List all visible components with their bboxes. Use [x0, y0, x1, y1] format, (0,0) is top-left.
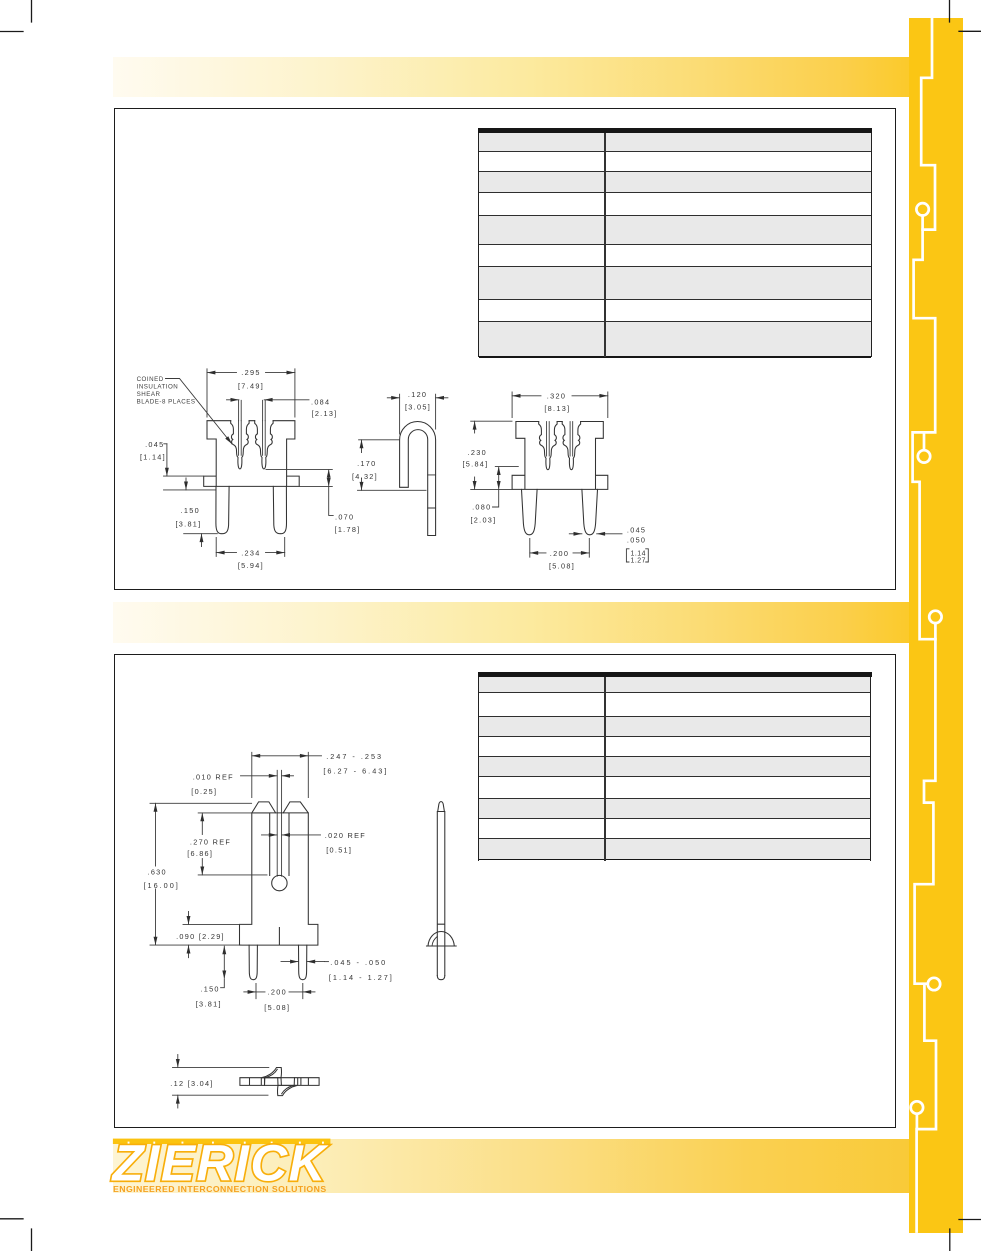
svg-text:.270 REF: .270 REF: [190, 837, 231, 846]
svg-text:.020 REF: .020 REF: [325, 831, 366, 840]
svg-text:[0.51]: [0.51]: [326, 846, 352, 855]
svg-text:COINED: COINED: [137, 376, 164, 383]
svg-text:.045: .045: [145, 440, 164, 449]
svg-text:ENGINEERED INTERCONNECTION SOL: ENGINEERED INTERCONNECTION SOLUTIONS: [113, 1184, 327, 1194]
svg-text:.234: .234: [241, 548, 260, 557]
svg-text:[4.32]: [4.32]: [352, 472, 378, 481]
svg-text:[1.78]: [1.78]: [335, 525, 361, 534]
svg-text:.120: .120: [408, 390, 427, 399]
svg-text:.045: .045: [627, 526, 646, 535]
svg-text:.295: .295: [241, 368, 260, 377]
svg-text:.010 REF: .010 REF: [193, 772, 234, 781]
svg-text:[2.03]: [2.03]: [470, 515, 496, 524]
svg-text:.247 - .253: .247 - .253: [326, 752, 383, 761]
svg-text:[5.94]: [5.94]: [238, 561, 264, 570]
svg-text:[16.00]: [16.00]: [144, 881, 180, 890]
svg-text:.080: .080: [472, 503, 491, 512]
svg-text:[6.27 - 6.43]: [6.27 - 6.43]: [323, 766, 388, 775]
svg-text:.150: .150: [181, 506, 200, 515]
svg-text:[8.13]: [8.13]: [544, 404, 570, 413]
svg-text:[3.05]: [3.05]: [405, 403, 431, 412]
svg-text:.045 - .050: .045 - .050: [330, 958, 387, 967]
svg-text:.070: .070: [335, 512, 354, 521]
svg-text:[7.49]: [7.49]: [238, 381, 264, 390]
svg-text:.200: .200: [268, 988, 287, 997]
svg-text:.050: .050: [627, 536, 646, 545]
svg-text:.090 [2.29]: .090 [2.29]: [176, 932, 225, 941]
svg-text:.170: .170: [357, 459, 376, 468]
svg-text:[1.14 - 1.27]: [1.14 - 1.27]: [329, 973, 394, 982]
svg-text:[5.84]: [5.84]: [462, 460, 488, 469]
svg-text:[5.08]: [5.08]: [264, 1003, 290, 1012]
svg-text:.084: .084: [311, 398, 330, 407]
svg-text:[3.81]: [3.81]: [196, 1000, 222, 1009]
svg-text:.630: .630: [148, 867, 167, 876]
svg-text:[0.25]: [0.25]: [191, 787, 217, 796]
svg-text:[5.08]: [5.08]: [549, 561, 575, 570]
svg-text:BLADE-8 PLACES: BLADE-8 PLACES: [137, 398, 196, 405]
svg-text:.150: .150: [200, 984, 219, 993]
svg-text:[6.86]: [6.86]: [187, 849, 213, 858]
svg-text:.12 [3.04]: .12 [3.04]: [170, 1079, 213, 1088]
svg-text:[2.13]: [2.13]: [312, 409, 338, 418]
svg-text:[1.14]: [1.14]: [140, 453, 166, 462]
svg-text:1.27: 1.27: [631, 557, 646, 564]
svg-text:SHEAR: SHEAR: [137, 391, 161, 398]
svg-text:.230: .230: [468, 448, 487, 457]
svg-text:.320: .320: [547, 392, 566, 401]
svg-text:INSULATION: INSULATION: [137, 384, 179, 391]
svg-text:[3.81]: [3.81]: [175, 519, 201, 528]
svg-text:.200: .200: [550, 549, 569, 558]
